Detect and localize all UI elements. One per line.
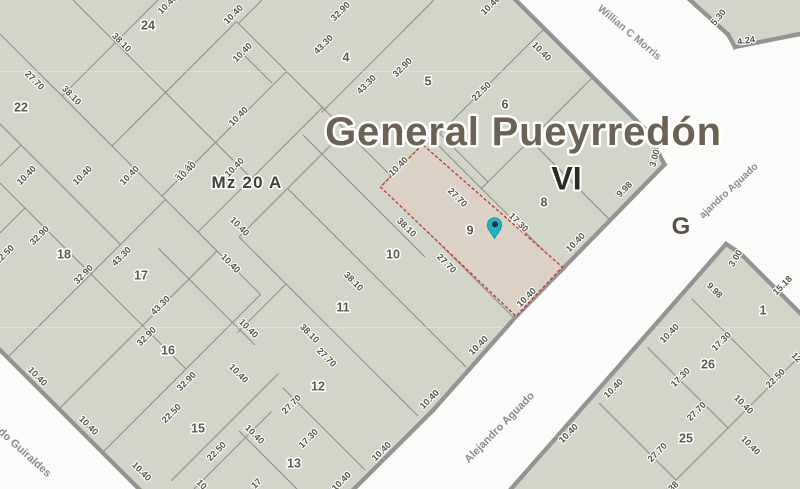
svg-text:26: 26 [701, 358, 715, 372]
svg-text:18: 18 [57, 248, 71, 262]
svg-text:12: 12 [311, 380, 325, 394]
svg-text:25: 25 [679, 432, 693, 446]
svg-text:10: 10 [386, 248, 400, 262]
svg-text:G: G [672, 213, 691, 240]
svg-text:VI: VI [551, 161, 581, 197]
svg-text:17: 17 [134, 269, 148, 283]
svg-text:11: 11 [336, 301, 349, 315]
svg-text:16: 16 [161, 344, 175, 358]
svg-text:5: 5 [424, 75, 431, 89]
svg-text:4: 4 [342, 51, 349, 65]
svg-text:Mz 20 A: Mz 20 A [211, 173, 282, 192]
svg-text:22: 22 [14, 101, 28, 115]
svg-text:9: 9 [466, 224, 473, 238]
svg-text:15: 15 [191, 422, 205, 436]
svg-text:24: 24 [141, 19, 155, 33]
svg-text:13: 13 [287, 457, 301, 471]
svg-text:General Pueyrredón: General Pueyrredón [325, 110, 722, 154]
svg-text:1: 1 [759, 304, 766, 318]
svg-text:8: 8 [540, 196, 547, 210]
